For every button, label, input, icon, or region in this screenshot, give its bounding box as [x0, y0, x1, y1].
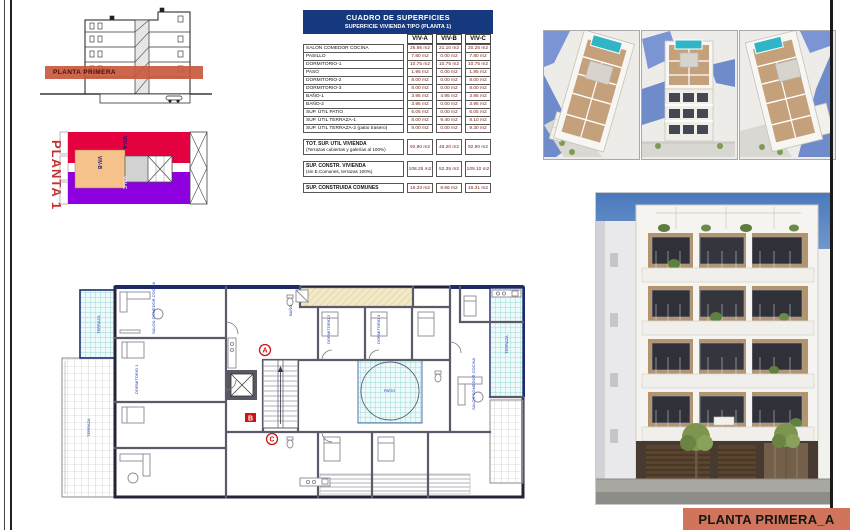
table-row-label: DORMITORIO-1	[303, 61, 404, 69]
table-cell: 1.95 m2	[465, 69, 491, 77]
sheet-border-left-outer	[4, 0, 5, 530]
table-cell: 21.10 m2	[436, 44, 462, 53]
key-plan: PLANTA 1 VIV-A	[28, 126, 213, 222]
room-label: TERRAZA	[86, 418, 91, 437]
table-cell: 3.95 m2	[407, 101, 433, 109]
surface-table-column-headers: VIV-A VIV-B VIV-C	[303, 34, 493, 44]
table-cell: 8.00 m2	[465, 85, 491, 93]
surface-table-subtitle: SUPERFICIE VIVIENDA TIPO (PLANTA 1)	[303, 24, 493, 30]
floor-plan: A B C TERRAZA TERRAZA SALON COMEDOR COCI…	[60, 282, 530, 504]
table-cell: 3.95 m2	[465, 101, 491, 109]
summary-label: SUP. CONSTRUIDA COMUNES	[303, 183, 404, 193]
key-plan-title: PLANTA 1	[49, 140, 64, 210]
table-cell: 3.95 m2	[407, 93, 433, 101]
surface-table-header: CUADRO DE SUPERFICIES SUPERFICIE VIVIEND…	[303, 10, 493, 34]
surface-table: CUADRO DE SUPERFICIES SUPERFICIE VIVIEND…	[303, 10, 493, 193]
column-header-viv-b: VIV-B	[436, 34, 462, 44]
key-plan-unit-b-label: VIV-B	[96, 156, 102, 169]
room-label: SALON COMEDOR COCINA	[151, 282, 156, 334]
unit-marker-a: A	[260, 345, 271, 356]
room-label: TERRAZA	[96, 315, 101, 334]
unit-marker-c: C	[267, 434, 278, 445]
summary-cell: 8.66 m2	[436, 183, 462, 193]
table-cell: 0.00 m2	[436, 101, 462, 109]
table-cell: 6.05 m2	[465, 109, 491, 117]
key-plan-unit-c-label: VIV-C	[121, 176, 127, 189]
facade-render	[595, 192, 833, 505]
table-row-label: SUP. ÚTIL TERRAZA-1	[303, 117, 404, 125]
summary-cell: 46.20 m2	[436, 139, 462, 155]
table-cell: 0.00 m2	[436, 109, 462, 117]
key-plan-stair	[148, 156, 172, 182]
table-row-label: PASILLO	[303, 53, 404, 61]
table-row-label: PASO	[303, 69, 404, 77]
table-row-label: SUP. ÚTIL TERRAZA-2 (patio trasero)	[303, 125, 404, 133]
planta-primera-band-label: PLANTA PRIMERA	[53, 69, 116, 76]
table-row-label: SALON COMEDOR COCINA	[303, 44, 404, 53]
table-cell: 0.00 m2	[436, 77, 462, 85]
room-label: TERRAZA	[504, 335, 509, 354]
table-cell: 9.00 m2	[407, 125, 433, 133]
column-header-blank	[303, 34, 404, 42]
table-cell: 9.40 m2	[436, 117, 462, 125]
table-cell: 1.95 m2	[407, 69, 433, 77]
table-cell: 8.10 m2	[465, 117, 491, 125]
room-label: DORMITORIO 2	[326, 314, 331, 344]
table-cell: 6.05 m2	[407, 109, 433, 117]
summary-cell: 92.80 m2	[407, 139, 433, 155]
svg-text:B: B	[248, 415, 253, 422]
elevator	[227, 370, 257, 400]
table-row-label: BAÑO-2	[303, 101, 404, 109]
key-plan-unit-a-label: VIV-A	[121, 136, 127, 149]
table-cell: 3.95 m2	[465, 93, 491, 101]
table-cell: 20.25 m2	[465, 44, 491, 53]
summary-label: TOT. SUP. ÚTIL VIVIENDA (Terrazas cubier…	[303, 139, 404, 155]
staircase	[263, 360, 298, 428]
floor-plan-graphic: A B C TERRAZA TERRAZA SALON COMEDOR COCI…	[60, 282, 530, 504]
aerial-render-2	[641, 30, 738, 160]
table-cell: 10.75 m2	[465, 61, 491, 69]
sidewalk	[596, 479, 832, 492]
balcony-striped-bottom	[320, 474, 470, 494]
summary-label: SUP. CONSTR. VIVIENDA (sin E.Comunes, te…	[303, 161, 404, 177]
room-label: PATIO	[384, 388, 395, 393]
surface-table-body: SALON COMEDOR COCINA 25.95 m2 21.10 m2 2…	[303, 44, 493, 133]
table-cell: 8.00 m2	[407, 77, 433, 85]
sheet-border-left-inner	[10, 0, 12, 530]
svg-text:C: C	[269, 437, 274, 444]
road	[596, 492, 832, 504]
table-cell: 10.75 m2	[436, 61, 462, 69]
room-label: BAÑO	[288, 305, 293, 316]
sheet-title-label: PLANTA PRIMERA_A	[698, 512, 834, 527]
key-plan-graphic: PLANTA 1 VIV-A	[28, 126, 213, 222]
summary-cell: 108.25 m2	[407, 161, 433, 177]
aerial-render-1	[543, 30, 640, 160]
summary-row-constr: SUP. CONSTR. VIVIENDA (sin E.Comunes, te…	[303, 161, 493, 177]
terrace-tiled-bottom-right	[490, 400, 523, 483]
summary-cell: 109.10 m2	[465, 161, 491, 177]
table-cell: 4.95 m2	[436, 93, 462, 101]
plan-sheet: PLANTA PRIMERA PLANTA 1	[0, 0, 850, 530]
section-drawing-graphic	[40, 6, 215, 118]
room-label: DORMITORIO 1	[134, 364, 139, 394]
summary-label-line2: (sin E.Comunes, terrazas 100%)	[306, 169, 401, 175]
summary-row-util: TOT. SUP. ÚTIL VIVIENDA (Terrazas cubier…	[303, 139, 493, 155]
table-row-label: SUP. ÚTIL PATIO	[303, 109, 404, 117]
table-cell: 8.00 m2	[465, 77, 491, 85]
table-cell: 0.00 m2	[436, 125, 462, 133]
table-cell: 9.30 m2	[465, 125, 491, 133]
column-header-viv-c: VIV-C	[465, 34, 491, 44]
table-cell: 10.75 m2	[407, 61, 433, 69]
summary-row-comunes: SUP. CONSTRUIDA COMUNES 16.33 m2 8.66 m2…	[303, 183, 493, 193]
table-row-label: BAÑO-1	[303, 93, 404, 101]
column-header-viv-a: VIV-A	[407, 34, 433, 44]
table-cell: 8.00 m2	[407, 85, 433, 93]
sheet-title-band: PLANTA PRIMERA_A	[683, 508, 850, 530]
surface-table-title: CUADRO DE SUPERFICIES	[303, 13, 493, 22]
table-row-label: DORMITORIO-3	[303, 85, 404, 93]
key-plan-terrace-column	[190, 132, 207, 204]
summary-cell: 16.33 m2	[407, 183, 433, 193]
table-cell: 7.80 m2	[407, 53, 433, 61]
summary-label-line2: (Terrazas cubiertas y galerías al 100%)	[306, 147, 401, 153]
summary-cell: 92.90 m2	[465, 139, 491, 155]
table-cell: 0.00 m2	[436, 85, 462, 93]
section-drawing: PLANTA PRIMERA	[40, 6, 215, 118]
gallery-cream-hatch	[300, 288, 413, 307]
summary-cell: 16.31 m2	[465, 183, 491, 193]
room-label: DORMITORIO 3	[376, 314, 381, 344]
planta-primera-band: PLANTA PRIMERA	[45, 66, 203, 79]
table-cell: 8.00 m2	[407, 117, 433, 125]
table-row-label: DORMITORIO-2	[303, 77, 404, 85]
aerial-render-3	[739, 30, 836, 160]
svg-text:A: A	[262, 348, 267, 355]
table-cell: 7.80 m2	[465, 53, 491, 61]
summary-cell: 52.35 m2	[436, 161, 462, 177]
unit-marker-b: B	[245, 413, 256, 422]
section-stair-core	[135, 20, 149, 94]
table-cell: 25.95 m2	[407, 44, 433, 53]
sheet-border-right	[830, 0, 833, 530]
room-label: SALON COMEDOR COCINA	[471, 357, 476, 410]
summary-label-line1: SUP. CONSTRUIDA COMUNES	[306, 185, 401, 191]
table-cell: 0.00 m2	[436, 53, 462, 61]
table-cell: 0.00 m2	[436, 69, 462, 77]
